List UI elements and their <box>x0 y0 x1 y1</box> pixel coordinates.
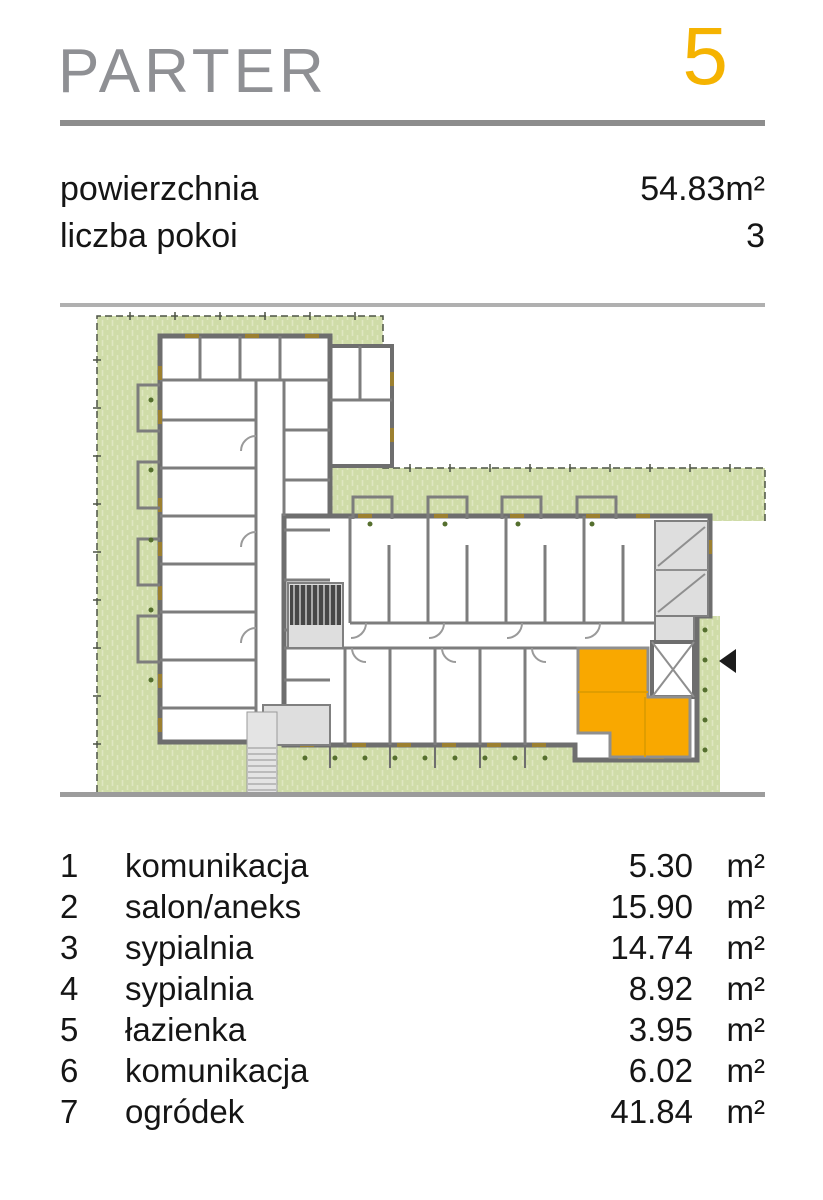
floor-plan-sheet: PARTER 5 powierzchnia 54.83m² liczba pok… <box>0 0 823 1200</box>
room-area-unit: m² <box>693 886 765 927</box>
table-row: 5 łazienka 3.95 m² <box>60 1009 765 1050</box>
room-area-unit: m² <box>693 845 765 886</box>
room-name: sypialnia <box>125 927 573 968</box>
staircase-icon <box>288 583 343 648</box>
elevator-x-icon <box>652 642 694 697</box>
room-name: komunikacja <box>125 845 573 886</box>
room-area: 41.84 <box>573 1091 693 1132</box>
room-area: 5.30 <box>573 845 693 886</box>
unit-number: 5 <box>682 14 728 100</box>
room-number: 1 <box>60 845 125 886</box>
table-row: 4 sypialnia 8.92 m² <box>60 968 765 1009</box>
table-row: 6 komunikacja 6.02 m² <box>60 1050 765 1091</box>
room-area: 14.74 <box>573 927 693 968</box>
room-area-unit: m² <box>693 968 765 1009</box>
room-name: łazienka <box>125 1009 573 1050</box>
room-number: 3 <box>60 927 125 968</box>
table-row: 2 salon/aneks 15.90 m² <box>60 886 765 927</box>
room-count-label: liczba pokoi <box>60 217 238 256</box>
room-area-unit: m² <box>693 1009 765 1050</box>
room-area: 3.95 <box>573 1009 693 1050</box>
room-area: 6.02 <box>573 1050 693 1091</box>
room-area: 15.90 <box>573 886 693 927</box>
room-number: 2 <box>60 886 125 927</box>
room-name: salon/aneks <box>125 886 573 927</box>
room-number: 6 <box>60 1050 125 1091</box>
room-table: 1 komunikacja 5.30 m² 2 salon/aneks 15.9… <box>60 845 765 1132</box>
entrance-arrow-icon <box>719 649 736 673</box>
room-number: 7 <box>60 1091 125 1132</box>
plan-top-divider <box>60 303 765 307</box>
table-row: 7 ogródek 41.84 m² <box>60 1091 765 1132</box>
plan-bottom-divider <box>60 792 765 797</box>
room-name: ogródek <box>125 1091 573 1132</box>
room-number: 5 <box>60 1009 125 1050</box>
room-area-unit: m² <box>693 1091 765 1132</box>
room-name: sypialnia <box>125 968 573 1009</box>
table-row: 3 sypialnia 14.74 m² <box>60 927 765 968</box>
page-title: PARTER <box>58 36 328 107</box>
room-name: komunikacja <box>125 1050 573 1091</box>
header-divider <box>60 120 765 126</box>
room-area: 8.92 <box>573 968 693 1009</box>
table-row: 1 komunikacja 5.30 m² <box>60 845 765 886</box>
room-area-unit: m² <box>693 1050 765 1091</box>
summary-row-area: powierzchnia 54.83m² <box>60 170 765 217</box>
area-value: 54.83m² <box>640 170 765 209</box>
room-count-value: 3 <box>746 217 765 256</box>
room-area-unit: m² <box>693 927 765 968</box>
summary-block: powierzchnia 54.83m² liczba pokoi 3 <box>60 170 765 264</box>
area-label: powierzchnia <box>60 170 258 209</box>
room-number: 4 <box>60 968 125 1009</box>
summary-row-rooms: liczba pokoi 3 <box>60 217 765 264</box>
